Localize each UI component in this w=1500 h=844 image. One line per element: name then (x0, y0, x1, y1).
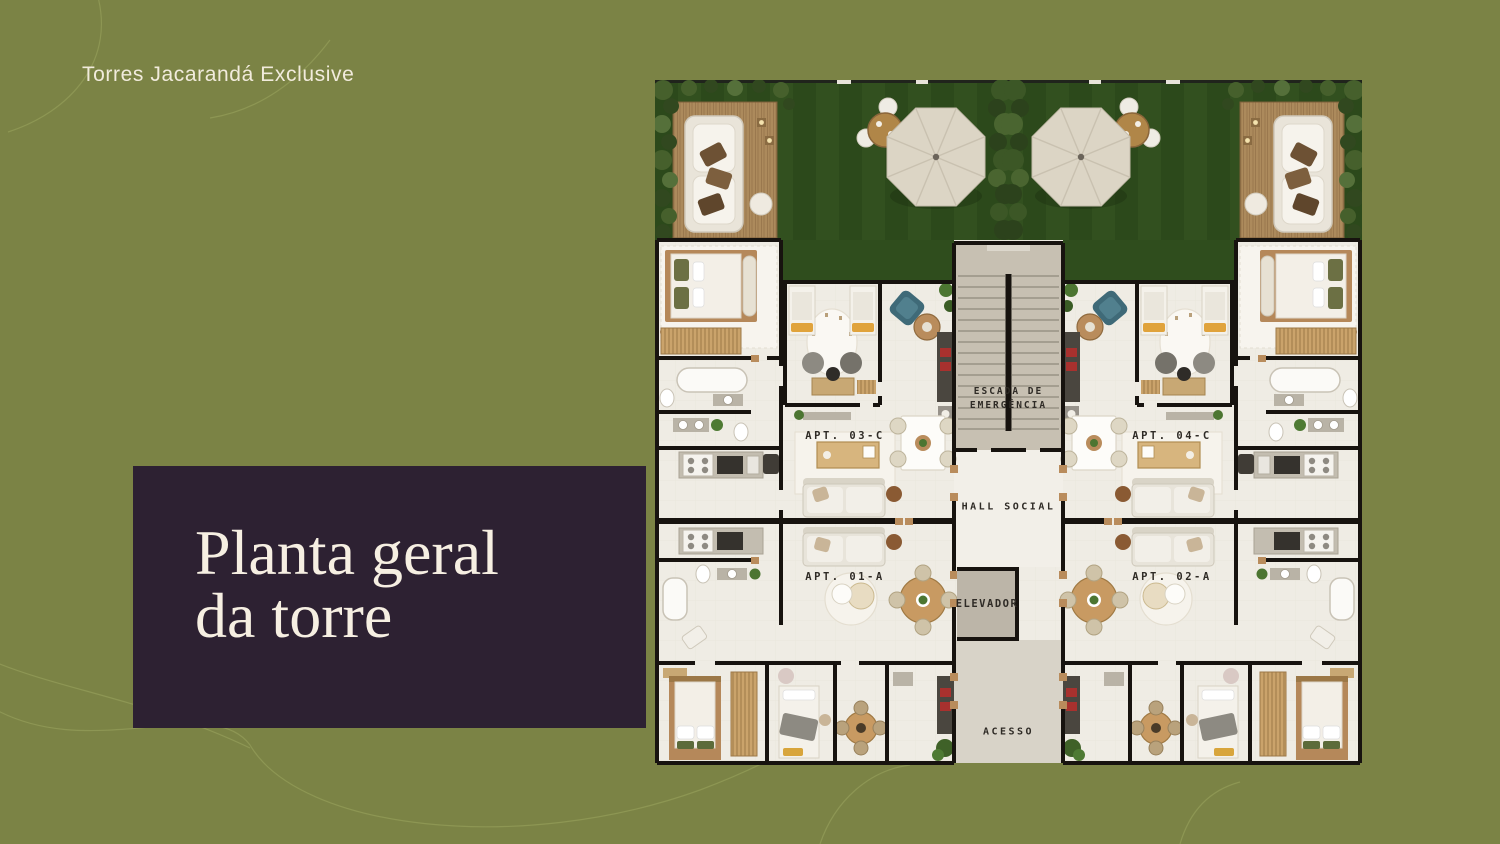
label-access: ACESSO (983, 727, 1034, 738)
label-apt-03c: APT. 03-C (805, 430, 884, 442)
label-emergency-stairs-line1: ESCADA DE (970, 385, 1047, 399)
label-apt-01a: APT. 01-A (805, 571, 884, 583)
corner-deck-lounge (673, 102, 777, 238)
page-title-line2: da torre (195, 585, 499, 648)
page-title: Planta geral da torre (195, 522, 499, 647)
suite-bedroom (660, 246, 777, 354)
label-hall-social: HALL SOCIAL (962, 502, 1056, 513)
kitchen-tower (937, 332, 954, 422)
presentation-slide: Torres Jacarandá Exclusive Planta geral … (0, 0, 1500, 844)
label-emergency-stairs: ESCADA DE EMERGÊNCIA (970, 385, 1047, 413)
title-panel: Planta geral da torre (133, 466, 646, 728)
brand-title: Torres Jacarandá Exclusive (82, 63, 354, 87)
bedroom-bottom-outer (663, 668, 757, 760)
page-title-line1: Planta geral (195, 522, 499, 585)
floor-plan-graphic (655, 80, 1362, 765)
label-apt-04c: APT. 04-C (1132, 430, 1211, 442)
access-area (954, 640, 1063, 763)
label-emergency-stairs-line2: EMERGÊNCIA (970, 399, 1047, 413)
label-apt-02a: APT. 02-A (1132, 571, 1211, 583)
floor-plan: ESCADA DE EMERGÊNCIA HALL SOCIAL ELEVADO… (655, 80, 1362, 765)
label-elevator: ELEVADOR (956, 598, 1019, 610)
